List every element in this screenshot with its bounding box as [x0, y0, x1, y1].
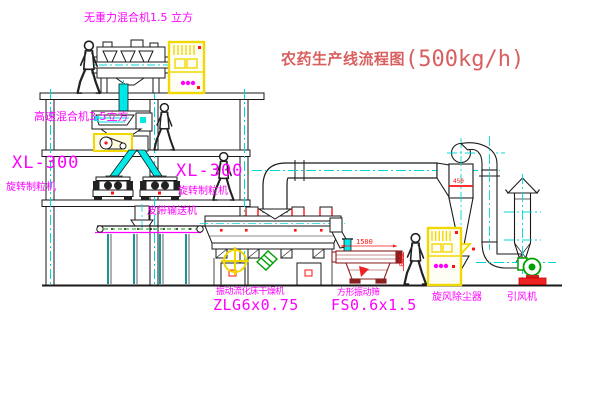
- label-cyclone-dust-collector: 旋风除尘器: [432, 293, 482, 303]
- granulator-left-drawing: [93, 177, 133, 200]
- label-sieve-model: FS0.6x1.5: [331, 298, 417, 313]
- label-granulator-right-name: 旋转制粒机: [178, 187, 228, 197]
- label-gravity-mixer: 无重力混合机1.5 立方: [84, 12, 193, 23]
- cyclone-outlet-pipe-drawing: [461, 136, 556, 268]
- label-granulator-left-model: XL-300: [12, 155, 79, 172]
- label-induced-draft-fan: 引风机: [507, 293, 537, 303]
- granulator-right-drawing: [140, 177, 180, 200]
- person-figure-ground: [405, 234, 427, 284]
- label-granulator-left-name: 旋转制粒机: [6, 183, 56, 193]
- sieve-drawing: [332, 245, 404, 284]
- dimension-sieve-height: 500: [397, 254, 404, 267]
- label-granulator-right-model: XL-300: [176, 163, 243, 180]
- diagram-title: 农药生产线流程图 (500kg/h): [281, 47, 524, 72]
- diagram-title-capacity: (500kg/h): [405, 47, 524, 72]
- control-cabinet-ground-drawing: [428, 228, 461, 285]
- dimension-sieve-length: 1500: [356, 239, 373, 246]
- dimension-cyclone-width: 450: [453, 179, 464, 185]
- label-dryer-model: ZLG6x0.75: [213, 298, 299, 313]
- cad-canvas: 农药生产线流程图 (500kg/h) 无重力混合机1.5 立方 高速混合机3.5…: [0, 0, 600, 403]
- control-cabinet-top-drawing: [169, 42, 204, 93]
- diagram-title-zh: 农药生产线流程图: [281, 48, 405, 69]
- label-belt-conveyor: 皮带输送机: [147, 207, 197, 217]
- label-high-speed-mixer: 高速混合机3.5立方: [34, 111, 129, 122]
- fluid-bed-dryer-drawing: [200, 207, 353, 285]
